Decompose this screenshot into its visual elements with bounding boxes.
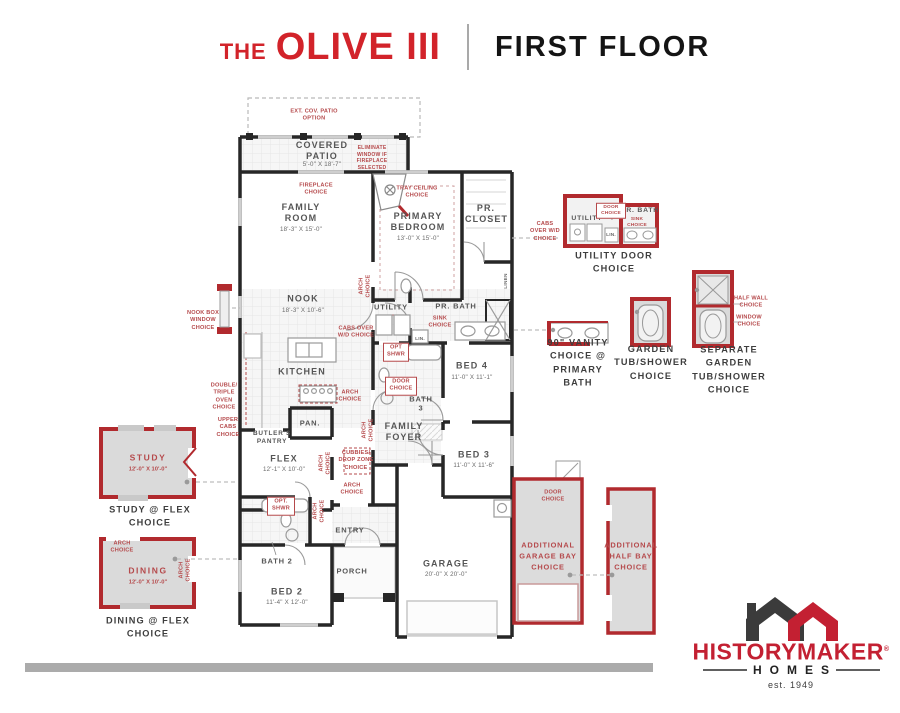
dims-covered-patio: 5'-0" X 18'-7"	[303, 161, 341, 169]
dining-arch-choice-top: ARCH CHOICE	[109, 541, 135, 556]
room-label-flex: FLEX	[270, 453, 297, 464]
additional-half-bay-label: ADDITIONAL HALF BAY CHOICE	[602, 539, 660, 572]
vanity-caption: 90" VANITY CHOICE @ PRIMARY BATH	[538, 336, 618, 389]
room-label-butlers-pantry: BUTLER'S PANTRY	[247, 430, 297, 446]
window-choice-label: WINDOW CHOICE	[729, 315, 769, 330]
dims-garage: 20'-0" X 20'-0"	[425, 571, 467, 579]
room-label-family-foyer: FAMILY FOYER	[382, 421, 426, 444]
dining-arch-choice-right: ARCH CHOICE	[179, 556, 194, 584]
dims-bed3: 11'-0" X 11'-6"	[453, 462, 494, 470]
dims-primary-bedroom: 13'-0" X 15'-0"	[397, 235, 439, 243]
garden-tub-caption: GARDEN TUB/SHOWER CHOICE	[614, 343, 688, 383]
arch-choice-label-6: ARCH CHOICE	[313, 497, 328, 525]
logo-registered-mark: ®	[884, 646, 890, 653]
logo-est: est. 1949	[768, 680, 814, 690]
ext-cov-patio-option-label: EXT. COV. PATIO OPTION	[281, 109, 347, 124]
dims-nook: 18'-3" X 10'-6"	[282, 307, 324, 315]
logo-homes: HOMES	[745, 663, 837, 677]
study-option-label: STUDY	[130, 453, 167, 464]
sink-choice-label-main: SINK CHOICE	[427, 316, 453, 331]
room-label-bath2: BATH 2	[247, 556, 307, 565]
double-triple-oven-label: DOUBLE/ TRIPLE OVEN CHOICE	[206, 382, 242, 411]
dims-flex: 12'-1" X 10'-0"	[263, 466, 305, 474]
upper-cabs-label: UPPER CABS CHOICE	[213, 417, 243, 439]
additional-garage-bay-label: ADDITIONAL GARAGE BAY CHOICE	[515, 539, 581, 572]
tray-ceiling-label: TRAY CEILING CHOICE	[388, 186, 446, 201]
cubbies-drop-zone-label: CUBBIES/ DROP ZONE CHOICE	[338, 450, 374, 472]
room-label-kitchen: KITCHEN	[278, 366, 326, 377]
room-label-primary-bedroom: PRIMARY BEDROOM	[385, 211, 451, 234]
arch-choice-label-1: ARCH CHOICE	[359, 272, 374, 300]
cabs-over-wd-label-main: CABS OVER W/D CHOICE	[336, 326, 376, 341]
nook-box-window-label: NOOK BOX WINDOW CHOICE	[180, 310, 226, 332]
linen-label: LINEN	[504, 273, 510, 288]
room-label-bath3: BATH 3	[409, 395, 433, 414]
dining-option-dims: 12'-0" X 10'-0"	[129, 579, 168, 586]
room-label-bed4: BED 4	[456, 360, 488, 371]
fireplace-choice-label: FIREPLACE CHOICE	[292, 183, 340, 198]
dining-option-label: DINING	[128, 566, 167, 577]
arch-choice-label-4: ARCH CHOICE	[319, 449, 334, 477]
room-label-pr-closet: PR. CLOSET	[465, 203, 507, 226]
logo-house-icon	[746, 597, 838, 641]
cabs-over-wd-label-diagram: CABS OVER W/D CHOICE	[530, 221, 560, 243]
floor-plan-page: THE OLIVE III FIRST FLOOR	[0, 0, 900, 713]
room-label-pr-bath: PR. BATH	[426, 301, 486, 310]
dims-bed4: 11'-0" X 11'-1"	[451, 374, 492, 382]
separate-garden-tub-caption: SEPARATE GARDEN TUB/SHOWER CHOICE	[687, 343, 771, 396]
opt-shwr-label-main: OPT SHWR	[383, 343, 409, 362]
dining-caption: DINING @ FLEX CHOICE	[102, 615, 194, 642]
door-choice-label-garage-bay: DOOR CHOICE	[538, 490, 568, 505]
utility-door-caption: UTILITY DOOR CHOICE	[559, 250, 669, 277]
room-label-family-room: FAMILY ROOM	[277, 202, 325, 225]
door-choice-label-diagram: DOOR CHOICE	[596, 203, 626, 219]
room-label-porch: PORCH	[336, 566, 367, 575]
room-label-covered-patio: COVERED PATIO	[291, 140, 353, 163]
lin-label-main: LIN.	[415, 337, 425, 343]
sink-choice-label-diagram: SINK CHOICE	[625, 217, 649, 229]
eliminate-window-label: ELIMINATE WINDOW IF FIREPLACE SELECTED	[350, 145, 394, 171]
room-label-pan: PAN.	[300, 418, 321, 427]
logo-brand-text: HISTORYMAKER	[693, 639, 884, 665]
half-wall-choice-label: HALF WALL CHOICE	[729, 296, 773, 311]
room-label-nook: NOOK	[287, 293, 318, 304]
arch-choice-label-3: ARCH CHOICE	[362, 416, 377, 444]
garden-tub-option-diagram	[632, 299, 669, 345]
arch-choice-label-5: ARCH CHOICE	[337, 483, 367, 498]
study-caption: STUDY @ FLEX CHOICE	[108, 504, 192, 531]
lin-label-diagram: LIN.	[606, 233, 616, 239]
opt-shwr-label-bath2: OPT. SHWR	[267, 497, 295, 516]
arch-choice-label-2: ARCH CHOICE	[335, 390, 365, 405]
room-label-entry: ENTRY	[335, 525, 364, 534]
ground-bar	[25, 663, 653, 672]
room-label-bed3: BED 3	[458, 449, 490, 460]
room-label-utility: UTILITY	[374, 302, 408, 311]
door-choice-label-main: DOOR CHOICE	[385, 377, 417, 396]
room-label-bed2: BED 2	[271, 586, 303, 597]
room-label-garage: GARAGE	[423, 558, 469, 569]
logo-brand: HISTORYMAKER®	[693, 639, 890, 666]
dims-bed2: 11'-4" X 12'-0"	[266, 599, 308, 607]
study-option-dims: 12'-0" X 10'-0"	[129, 466, 168, 473]
dims-family-room: 18'-3" X 15'-0"	[280, 226, 322, 234]
